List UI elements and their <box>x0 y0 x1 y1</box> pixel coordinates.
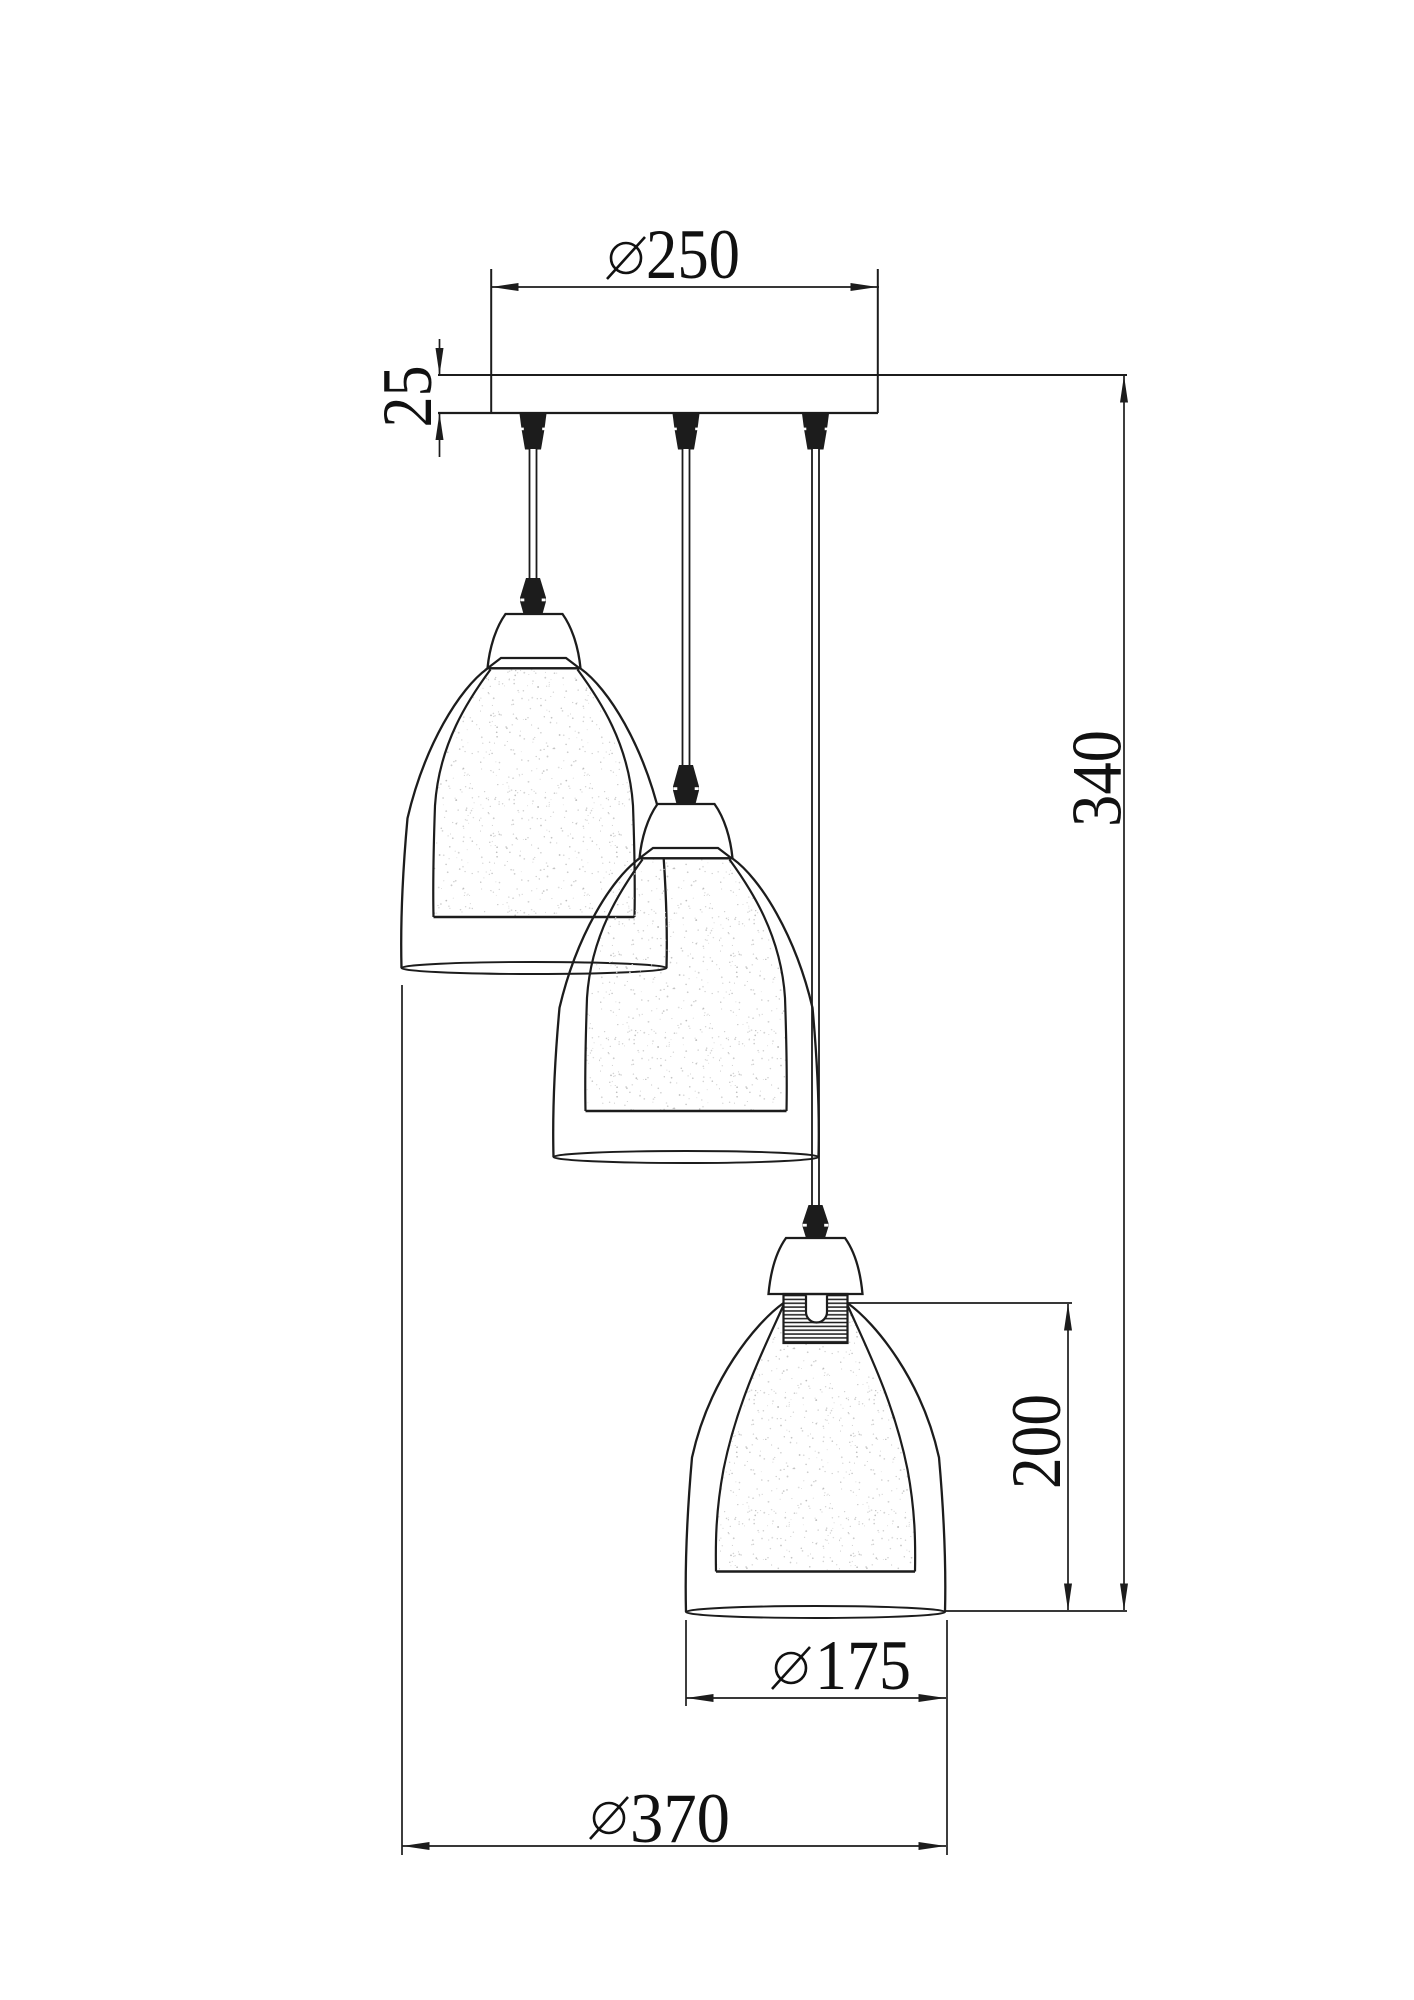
svg-text:200: 200 <box>998 1394 1076 1489</box>
svg-text:340: 340 <box>1059 730 1137 827</box>
svg-text:250: 250 <box>646 216 740 294</box>
svg-text:175: 175 <box>815 1627 911 1705</box>
svg-text:25: 25 <box>369 366 447 428</box>
svg-text:370: 370 <box>630 1780 730 1858</box>
